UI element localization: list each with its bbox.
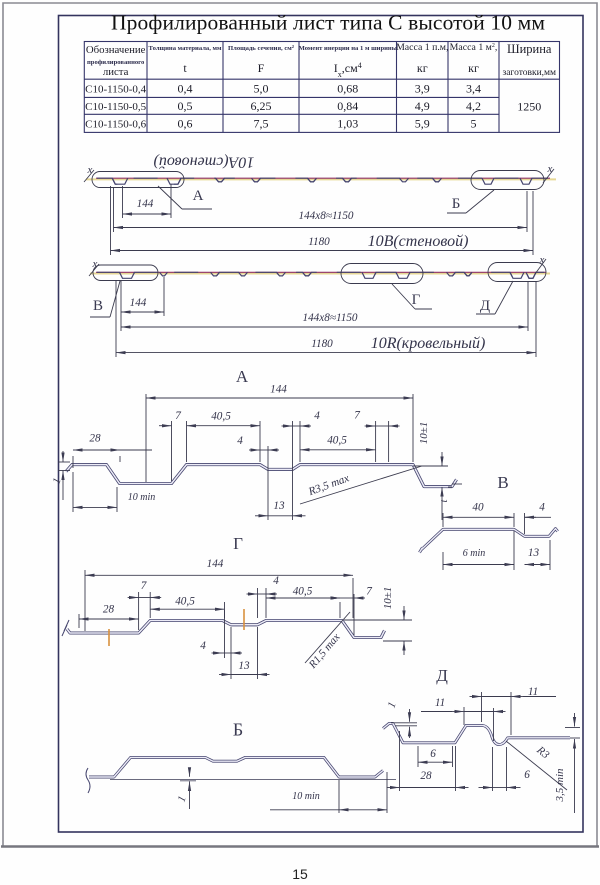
svg-text:0,68: 0,68 <box>337 82 358 96</box>
svg-text:1180: 1180 <box>311 338 333 350</box>
svg-text:Б: Б <box>452 196 461 212</box>
svg-text:6,25: 6,25 <box>251 99 272 113</box>
svg-text:Масса 1 п.м,: Масса 1 п.м, <box>396 42 448 53</box>
svg-text:А: А <box>193 188 204 204</box>
svg-text:10 min: 10 min <box>128 492 156 503</box>
svg-text:144х8≈1150: 144х8≈1150 <box>302 312 357 324</box>
svg-text:профилированного: профилированного <box>87 59 145 66</box>
svg-text:С10-1150-0,4: С10-1150-0,4 <box>85 84 147 96</box>
svg-text:5,9: 5,9 <box>415 117 430 131</box>
svg-text:6: 6 <box>430 748 436 760</box>
svg-text:А: А <box>236 367 249 386</box>
svg-text:кг: кг <box>417 61 428 75</box>
svg-text:11: 11 <box>435 697 445 709</box>
svg-text:0,84: 0,84 <box>337 99 358 113</box>
svg-text:заготовки,мм: заготовки,мм <box>502 68 556 78</box>
svg-text:28: 28 <box>103 604 115 616</box>
svg-text:5: 5 <box>471 117 477 131</box>
svg-text:Г: Г <box>412 292 421 308</box>
svg-text:144: 144 <box>207 558 224 570</box>
svg-text:Б: Б <box>233 720 243 740</box>
svg-text:Площадь сечения, см2: Площадь сечения, см2 <box>228 44 295 53</box>
svg-text:1180: 1180 <box>308 236 330 248</box>
svg-text:15: 15 <box>292 866 308 882</box>
svg-text:10±1: 10±1 <box>382 587 394 610</box>
svg-text:В: В <box>93 298 103 314</box>
svg-text:0,6: 0,6 <box>178 117 193 131</box>
svg-text:7: 7 <box>175 410 181 422</box>
svg-text:4,9: 4,9 <box>415 99 430 113</box>
svg-text:4: 4 <box>539 502 545 514</box>
svg-text:11: 11 <box>528 686 538 698</box>
svg-text:4: 4 <box>273 575 279 587</box>
svg-text:х: х <box>539 254 545 266</box>
svg-text:4: 4 <box>237 435 243 447</box>
svg-text:Толщина материала, мм: Толщина материала, мм <box>149 45 222 52</box>
svg-text:40,5: 40,5 <box>327 435 347 447</box>
svg-text:х: х <box>87 164 93 176</box>
svg-text:Г: Г <box>233 534 243 553</box>
svg-text:10±1: 10±1 <box>418 422 430 445</box>
svg-text:10В(стеновой): 10В(стеновой) <box>368 233 469 250</box>
svg-text:кг: кг <box>468 61 479 75</box>
svg-text:3,5 min: 3,5 min <box>554 768 566 803</box>
svg-text:Д: Д <box>436 666 448 685</box>
svg-text:С10-1150-0,6: С10-1150-0,6 <box>85 119 147 131</box>
svg-text:7,5: 7,5 <box>254 117 269 131</box>
svg-text:13: 13 <box>273 500 285 512</box>
svg-text:40,5: 40,5 <box>175 596 195 608</box>
svg-text:0,4: 0,4 <box>178 82 193 96</box>
svg-text:3,4: 3,4 <box>466 82 481 96</box>
svg-text:4: 4 <box>200 640 206 652</box>
svg-text:4: 4 <box>314 410 320 422</box>
svg-text:40,5: 40,5 <box>211 411 231 423</box>
svg-text:28: 28 <box>420 770 432 782</box>
svg-text:40: 40 <box>472 502 484 514</box>
svg-text:10 min: 10 min <box>292 791 320 802</box>
svg-text:Ширина: Ширина <box>507 42 552 56</box>
svg-text:144: 144 <box>137 198 154 210</box>
svg-text:28: 28 <box>89 433 101 445</box>
svg-text:10А(стеновой): 10А(стеновой) <box>154 154 255 171</box>
svg-text:40,5: 40,5 <box>293 586 313 598</box>
svg-text:1,03: 1,03 <box>337 117 358 131</box>
svg-text:Момент инерции на 1 м ширины: Момент инерции на 1 м ширины <box>299 45 397 52</box>
svg-text:144х8≈1150: 144х8≈1150 <box>298 210 353 222</box>
svg-text:144: 144 <box>130 297 147 309</box>
svg-text:Д: Д <box>480 298 490 314</box>
svg-text:х: х <box>92 258 98 270</box>
svg-text:0,5: 0,5 <box>178 99 193 113</box>
svg-text:6 min: 6 min <box>463 548 486 559</box>
svg-text:5,0: 5,0 <box>254 82 269 96</box>
svg-text:13: 13 <box>238 660 250 672</box>
svg-text:С10-1150-0,5: С10-1150-0,5 <box>85 101 147 113</box>
svg-text:3,9: 3,9 <box>415 82 430 96</box>
svg-text:13: 13 <box>528 547 540 559</box>
svg-text:7: 7 <box>141 580 147 592</box>
svg-text:Масса 1 м2,: Масса 1 м2, <box>450 42 498 53</box>
svg-text:F: F <box>258 61 265 75</box>
svg-text:6: 6 <box>524 769 530 781</box>
svg-text:144: 144 <box>270 384 287 396</box>
svg-text:В: В <box>497 473 508 492</box>
svg-text:4,2: 4,2 <box>466 99 481 113</box>
svg-text:Профилированный лист типа С вы: Профилированный лист типа С высотой 10 м… <box>111 11 545 35</box>
svg-text:7: 7 <box>366 586 372 598</box>
svg-text:листа: листа <box>103 66 129 78</box>
svg-text:х: х <box>547 163 553 175</box>
svg-text:7: 7 <box>354 410 360 422</box>
svg-text:10R(кровельный): 10R(кровельный) <box>371 335 486 352</box>
svg-text:Обозначение: Обозначение <box>86 44 146 56</box>
svg-text:1250: 1250 <box>517 99 541 113</box>
